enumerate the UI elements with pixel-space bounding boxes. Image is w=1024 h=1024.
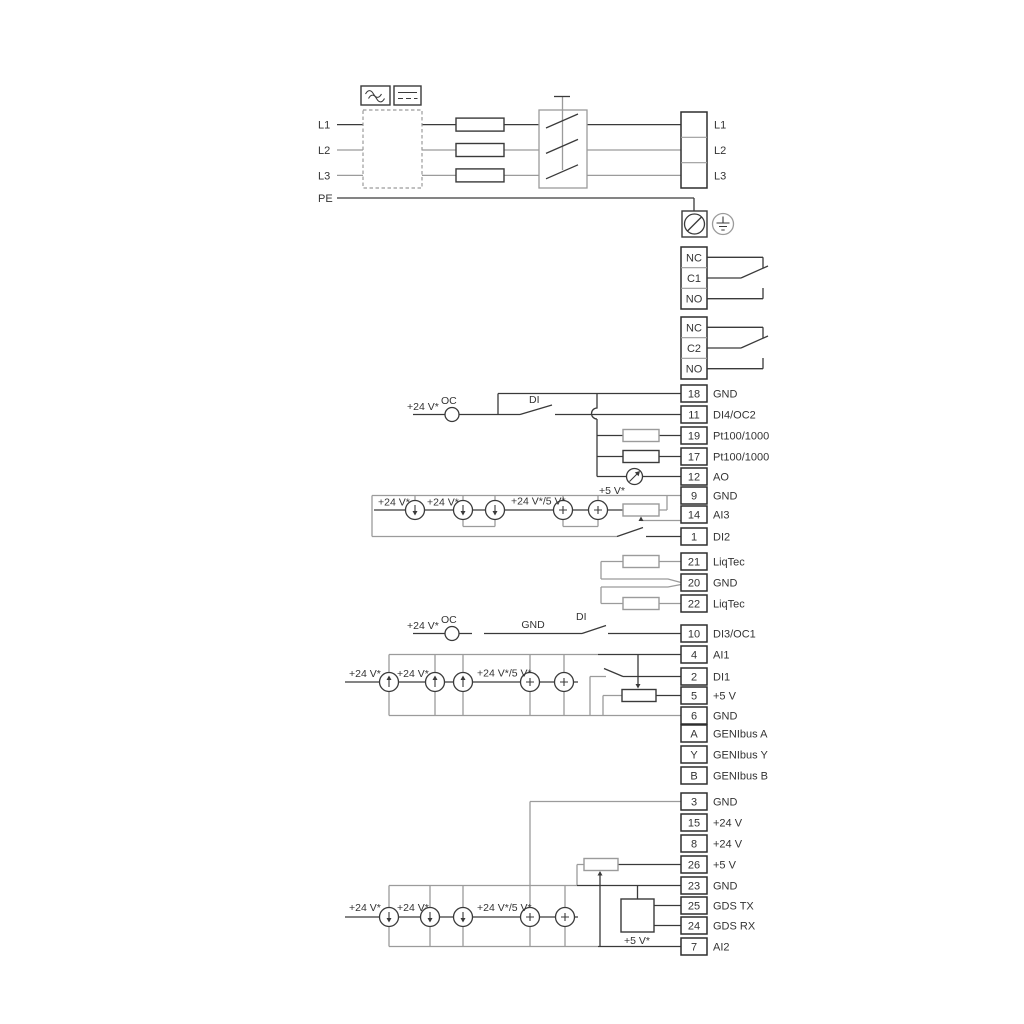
- terminal-17: 17Pt100/1000: [681, 448, 769, 465]
- input-label-l2: L2: [318, 145, 330, 157]
- svg-text:A: A: [690, 729, 698, 741]
- v24-label: +24 V*: [397, 902, 429, 914]
- svg-text:21: 21: [688, 557, 700, 569]
- terminal-24: 24GDS RX: [681, 917, 756, 934]
- terminal-26: 26+5 V: [681, 856, 737, 873]
- v24-label: +24 V*: [407, 620, 439, 632]
- svg-text:3: 3: [691, 797, 697, 809]
- input-label-l3: L3: [318, 170, 330, 182]
- svg-text:4: 4: [691, 650, 697, 662]
- mains-wires-dark: [337, 125, 694, 211]
- terminal-3-label: GND: [713, 797, 738, 809]
- terminal-15: 15+24 V: [681, 814, 743, 831]
- svg-text:B: B: [690, 771, 697, 783]
- pe-screw-terminal-icon: [682, 211, 707, 237]
- wiper-arrow-icon: [639, 517, 644, 522]
- group1-wiring: +24 V* OC DI: [407, 394, 681, 485]
- svg-text:11: 11: [688, 410, 699, 422]
- svg-text:18: 18: [688, 389, 700, 401]
- current-source-icon: [380, 908, 399, 927]
- terminal-22-label: LiqTec: [713, 599, 745, 611]
- fuse-l2: [456, 144, 504, 157]
- terminal-9: 9GND: [681, 487, 738, 504]
- current-source-icon: [454, 908, 473, 927]
- terminal-b: BGENIbus B: [681, 767, 768, 784]
- terminal-2: 2DI1: [681, 668, 730, 685]
- di-label: DI: [529, 394, 540, 406]
- terminal-8-label: +24 V: [713, 839, 743, 851]
- terminal-5: 5+5 V: [681, 687, 737, 704]
- di-label: DI: [576, 611, 587, 623]
- analog-output-meter-icon: [627, 469, 643, 485]
- terminal-14: 14AI3: [681, 506, 730, 523]
- terminal-23-label: GND: [713, 881, 738, 893]
- voltage-source-icon: [556, 908, 575, 927]
- terminal-10: 10DI3/OC1: [681, 625, 756, 642]
- terminal-11-label: DI4/OC2: [713, 410, 756, 422]
- terminal-18: 18GND: [681, 385, 738, 402]
- terminal-18-label: GND: [713, 389, 738, 401]
- svg-text:1: 1: [691, 532, 697, 544]
- relay1-no: NO: [686, 294, 703, 306]
- terminal-group-3: 10DI3/OC1 4AI1 2DI1 5+5 V 6GND AGENIbus …: [681, 625, 768, 784]
- terminal-4: 4AI1: [681, 646, 730, 663]
- terminal-17-label: Pt100/1000: [713, 452, 769, 464]
- liqtec-sensor-2: [623, 598, 659, 610]
- ai3-section: +24 V* +24 V* +24 V*/5 V* +5 V*: [372, 485, 681, 537]
- relay1-c1: C1: [687, 273, 701, 285]
- wiring-diagram-page: L1 L2 L3 PE L1 L2 L3 NC C1 NO NC C2: [0, 0, 1024, 1024]
- v24-label: +24 V*: [378, 497, 410, 509]
- svg-text:17: 17: [688, 452, 700, 464]
- terminal-b-label: GENIbus B: [713, 771, 768, 783]
- di3-row: +24 V* OC GND DI: [407, 611, 681, 641]
- terminal-6-label: GND: [713, 711, 738, 723]
- terminal-22: 22LiqTec: [681, 595, 745, 612]
- v24-5v-label: +24 V*/5 V*: [511, 496, 566, 508]
- terminal-6: 6GND: [681, 707, 738, 724]
- power-terminal-block: [681, 112, 707, 188]
- voltage-source-icon: [555, 673, 574, 692]
- terminal-7: 7AI2: [681, 938, 730, 955]
- disconnect-switch: [539, 97, 587, 189]
- input-label-l1: L1: [318, 120, 330, 132]
- terminal-8: 8+24 V: [681, 835, 743, 852]
- terminal-5-label: +5 V: [713, 691, 737, 703]
- ai2-section: +24 V* +24 V* +24 V*/5 V* +5 V*: [345, 802, 681, 948]
- output-label-l3: L3: [714, 170, 726, 182]
- terminal-24-label: GDS RX: [713, 921, 756, 933]
- mains-wires-gray: [337, 150, 681, 175]
- svg-text:2: 2: [691, 672, 697, 684]
- v24-label: +24 V*: [349, 902, 381, 914]
- terminal-7-label: AI2: [713, 942, 730, 954]
- filter-box: [363, 110, 422, 188]
- svg-text:22: 22: [688, 599, 700, 611]
- gds-sensor-box: [621, 899, 654, 932]
- oc-output-icon: [445, 408, 459, 422]
- terminal-25: 25GDS TX: [681, 897, 754, 914]
- terminal-4-label: AI1: [713, 650, 730, 662]
- svg-text:19: 19: [688, 431, 700, 443]
- gnd-label: GND: [521, 619, 545, 631]
- mains-section: L1 L2 L3 PE L1 L2 L3: [318, 86, 734, 237]
- oc-label: OC: [441, 395, 457, 407]
- svg-text:15: 15: [688, 818, 700, 830]
- voltage-source-icon: [589, 501, 608, 520]
- liqtec-sensor-1: [623, 556, 659, 568]
- earth-ground-icon: [713, 214, 734, 235]
- liqtec-section: [601, 556, 681, 610]
- svg-text:8: 8: [691, 839, 697, 851]
- current-source-icon: [486, 501, 505, 520]
- fuse-l3: [456, 169, 504, 182]
- pt100-sensor-1: [623, 430, 659, 442]
- terminal-group-1: 18GND 11DI4/OC2 19Pt100/1000 17Pt100/100…: [681, 385, 769, 545]
- terminal-20: 20GND: [681, 574, 738, 591]
- relay2-contact: [707, 327, 768, 368]
- current-source-icon: [380, 673, 399, 692]
- relay2-nc: NC: [686, 322, 702, 334]
- terminal-21-label: LiqTec: [713, 557, 745, 569]
- terminal-21: 21LiqTec: [681, 553, 745, 570]
- terminal-9-label: GND: [713, 491, 738, 503]
- oc-output-icon: [445, 627, 459, 641]
- terminal-1: 1DI2: [681, 528, 730, 545]
- svg-text:23: 23: [688, 881, 700, 893]
- terminal-10-label: DI3/OC1: [713, 629, 756, 641]
- v24-label: +24 V*: [397, 668, 429, 680]
- input-label-pe: PE: [318, 193, 333, 205]
- terminal-19-label: Pt100/1000: [713, 431, 769, 443]
- relay2-c2: C2: [687, 343, 701, 355]
- svg-text:Y: Y: [690, 750, 698, 762]
- pt100-sensor-2: [623, 451, 659, 463]
- ai3-potentiometer: [623, 504, 659, 516]
- wiper-arrow-icon: [598, 871, 603, 876]
- terminal-3: 3GND: [681, 793, 738, 810]
- relay1-contact: [707, 257, 768, 298]
- terminal-26-label: +5 V: [713, 860, 737, 872]
- relay2-block: NC C2 NO: [681, 317, 768, 379]
- oc-label: OC: [441, 614, 457, 626]
- terminal-12: 12AO: [681, 468, 729, 485]
- svg-text:24: 24: [688, 921, 700, 933]
- fuse-l1: [456, 118, 504, 131]
- current-source-icon: [454, 673, 473, 692]
- v24-label: +24 V*: [427, 497, 459, 509]
- terminal-2-label: DI1: [713, 672, 730, 684]
- output-label-l1: L1: [714, 120, 726, 132]
- wiper-arrow-icon: [636, 684, 641, 689]
- terminal-11: 11DI4/OC2: [681, 406, 756, 423]
- ai1-section: +24 V* +24 V* +24 V*/5 V*: [345, 655, 681, 716]
- terminal-y-label: GENIbus Y: [713, 750, 768, 762]
- ac-icon: [361, 86, 390, 105]
- terminal-19: 19Pt100/1000: [681, 427, 769, 444]
- svg-text:10: 10: [688, 629, 700, 641]
- terminal-23: 23GND: [681, 877, 738, 894]
- svg-text:14: 14: [688, 510, 700, 522]
- terminal-20-label: GND: [713, 578, 738, 590]
- terminal-group-4: 3GND 15+24 V 8+24 V 26+5 V 23GND 25GDS T…: [681, 793, 756, 955]
- terminal-a: AGENIbus A: [681, 725, 768, 742]
- relay2-no: NO: [686, 364, 703, 376]
- ai1-potentiometer: [622, 690, 656, 702]
- terminal-a-label: GENIbus A: [713, 729, 768, 741]
- v24-5v-label: +24 V*/5 V*: [477, 668, 532, 680]
- terminal-12-label: AO: [713, 472, 729, 484]
- terminal-15-label: +24 V: [713, 818, 743, 830]
- v24-5v-label: +24 V*/5 V*: [477, 902, 532, 914]
- svg-text:6: 6: [691, 711, 697, 723]
- relay1-nc: NC: [686, 252, 702, 264]
- svg-text:5: 5: [691, 691, 697, 703]
- svg-text:20: 20: [688, 578, 700, 590]
- svg-text:12: 12: [688, 472, 700, 484]
- terminal-25-label: GDS TX: [713, 901, 754, 913]
- svg-text:25: 25: [688, 901, 700, 913]
- svg-text:26: 26: [688, 860, 700, 872]
- dc-icon: [394, 86, 421, 105]
- terminal-group-2: 21LiqTec 20GND 22LiqTec: [681, 553, 745, 612]
- terminal-14-label: AI3: [713, 510, 730, 522]
- v24-label: +24 V*: [407, 401, 439, 413]
- output-label-l2: L2: [714, 145, 726, 157]
- terminal-1-label: DI2: [713, 532, 730, 544]
- svg-text:9: 9: [691, 491, 697, 503]
- v24-label: +24 V*: [349, 668, 381, 680]
- terminal-y: YGENIbus Y: [681, 746, 768, 763]
- v5-label: +5 V*: [599, 485, 625, 497]
- relay1-block: NC C1 NO: [681, 247, 768, 309]
- v5-label: +5 V*: [624, 935, 650, 947]
- wiring-diagram: L1 L2 L3 PE L1 L2 L3 NC C1 NO NC C2: [0, 0, 1024, 1024]
- svg-text:7: 7: [691, 942, 697, 954]
- ai2-potentiometer: [584, 859, 618, 871]
